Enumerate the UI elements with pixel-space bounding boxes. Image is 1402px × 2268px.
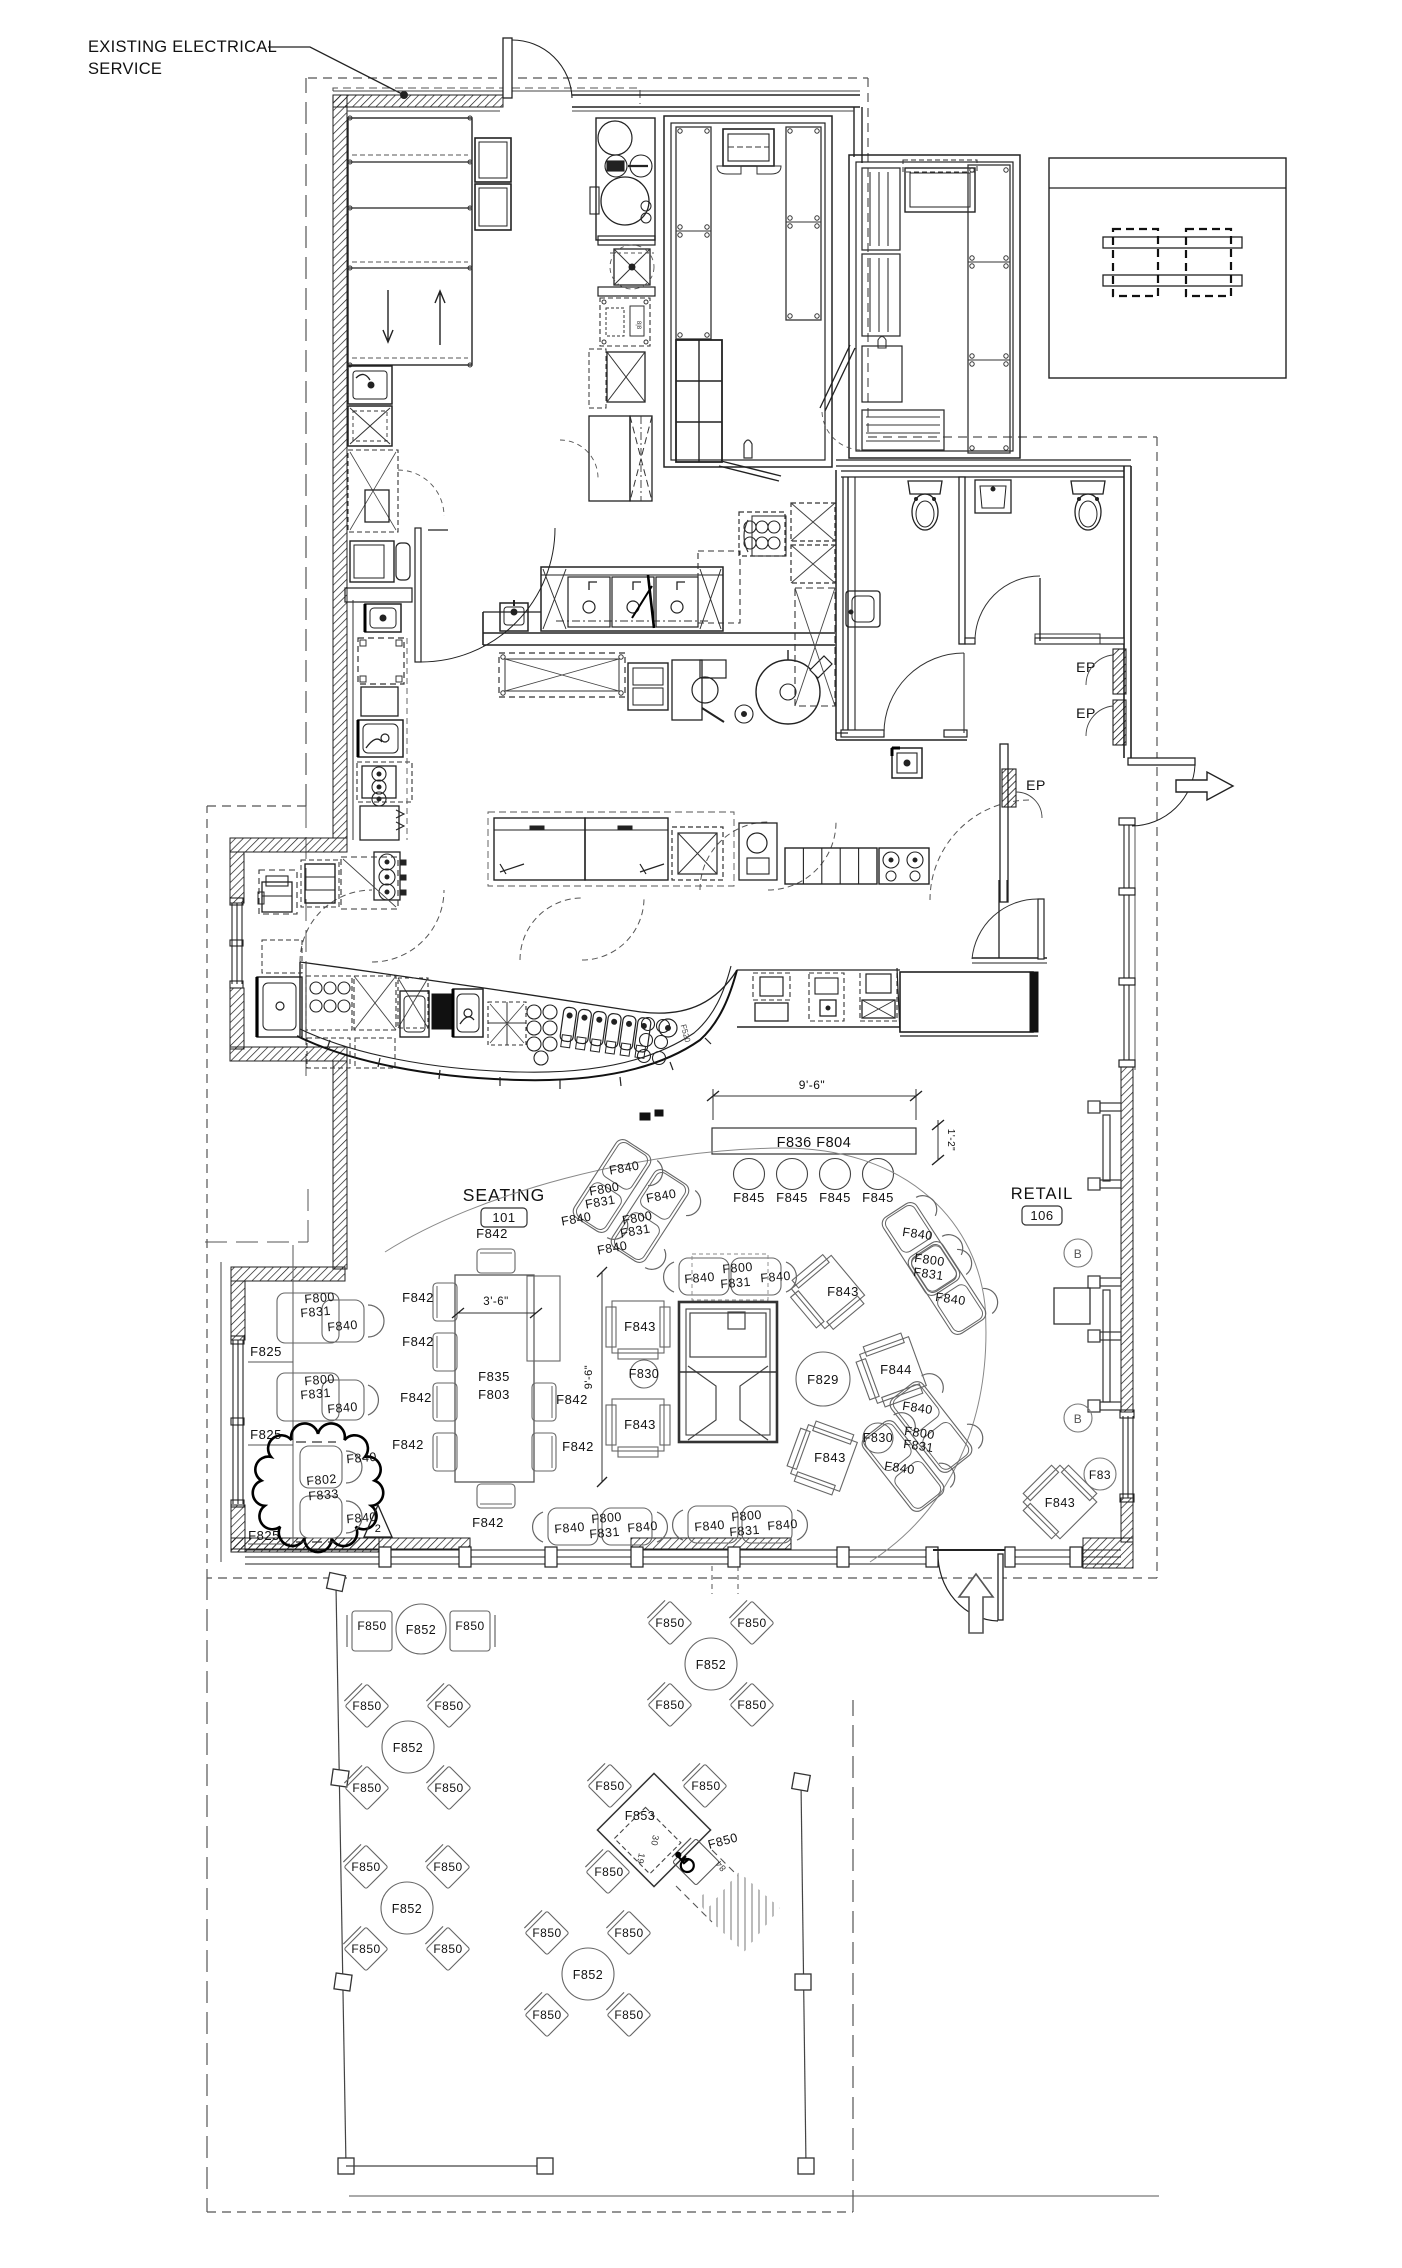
svg-text:F843: F843 bbox=[624, 1319, 656, 1334]
svg-text:F842: F842 bbox=[562, 1439, 594, 1454]
svg-text:F850: F850 bbox=[357, 1619, 386, 1633]
svg-text:F831: F831 bbox=[729, 1523, 761, 1540]
svg-text:F831: F831 bbox=[300, 1386, 332, 1403]
svg-text:F800: F800 bbox=[591, 1510, 623, 1527]
svg-text:F850: F850 bbox=[455, 1619, 484, 1633]
svg-text:F842: F842 bbox=[402, 1334, 434, 1349]
svg-text:101: 101 bbox=[492, 1210, 515, 1225]
svg-text:F840: F840 bbox=[327, 1400, 359, 1417]
svg-text:F852: F852 bbox=[573, 1968, 604, 1982]
svg-text:30: 30 bbox=[649, 1834, 661, 1847]
svg-text:F843: F843 bbox=[814, 1450, 846, 1465]
svg-text:F843: F843 bbox=[624, 1417, 656, 1432]
svg-text:F830: F830 bbox=[629, 1367, 660, 1381]
svg-text:F850: F850 bbox=[434, 1781, 463, 1795]
svg-text:EP: EP bbox=[1076, 705, 1096, 721]
svg-text:SERVICE: SERVICE bbox=[88, 60, 162, 78]
svg-text:F850: F850 bbox=[737, 1698, 766, 1712]
svg-text:F853: F853 bbox=[625, 1809, 656, 1823]
svg-text:F836 F804: F836 F804 bbox=[777, 1135, 852, 1151]
svg-text:RETAIL: RETAIL bbox=[1011, 1185, 1074, 1203]
svg-text:F840: F840 bbox=[694, 1518, 726, 1535]
svg-text:F833: F833 bbox=[308, 1487, 340, 1504]
svg-text:F850: F850 bbox=[532, 2008, 561, 2022]
svg-text:F842: F842 bbox=[400, 1390, 432, 1405]
svg-text:F850: F850 bbox=[655, 1698, 684, 1712]
svg-text:F850: F850 bbox=[594, 1865, 623, 1879]
svg-text:F831: F831 bbox=[720, 1275, 752, 1292]
svg-text:F840: F840 bbox=[684, 1270, 716, 1287]
svg-text:3'-6": 3'-6" bbox=[483, 1296, 508, 1308]
svg-text:2: 2 bbox=[375, 1523, 382, 1535]
svg-text:F830: F830 bbox=[863, 1431, 894, 1445]
svg-text:F850: F850 bbox=[433, 1942, 462, 1956]
svg-text:F842: F842 bbox=[392, 1437, 424, 1452]
svg-text:F840: F840 bbox=[767, 1517, 799, 1534]
svg-text:F850: F850 bbox=[532, 1926, 561, 1940]
svg-text:F852: F852 bbox=[696, 1658, 727, 1672]
svg-text:F842: F842 bbox=[472, 1515, 504, 1530]
svg-text:F825: F825 bbox=[250, 1344, 282, 1359]
svg-text:F83: F83 bbox=[1089, 1468, 1111, 1482]
svg-text:F825: F825 bbox=[250, 1427, 282, 1442]
svg-text:F845: F845 bbox=[819, 1190, 851, 1205]
svg-text:F840: F840 bbox=[627, 1519, 659, 1536]
svg-text:8|8: 8|8 bbox=[635, 321, 641, 330]
svg-text:1'-2": 1'-2" bbox=[945, 1129, 956, 1151]
svg-text:F840: F840 bbox=[554, 1520, 586, 1537]
svg-text:F842: F842 bbox=[402, 1290, 434, 1305]
svg-text:F850: F850 bbox=[737, 1616, 766, 1630]
svg-text:F850: F850 bbox=[691, 1779, 720, 1793]
svg-text:F850: F850 bbox=[614, 2008, 643, 2022]
svg-text:F803: F803 bbox=[478, 1387, 510, 1402]
svg-text:F850: F850 bbox=[614, 1926, 643, 1940]
svg-text:F850: F850 bbox=[351, 1942, 380, 1956]
svg-text:F800: F800 bbox=[722, 1260, 754, 1277]
svg-text:F840: F840 bbox=[327, 1318, 359, 1335]
svg-text:F802: F802 bbox=[306, 1472, 338, 1489]
svg-text:F852: F852 bbox=[392, 1902, 423, 1916]
svg-text:F843: F843 bbox=[1045, 1496, 1076, 1510]
svg-text:106: 106 bbox=[1030, 1208, 1053, 1223]
svg-text:F829: F829 bbox=[807, 1372, 839, 1387]
svg-text:F840: F840 bbox=[760, 1269, 792, 1286]
svg-text:B: B bbox=[1074, 1412, 1083, 1426]
svg-text:F845: F845 bbox=[776, 1190, 808, 1205]
svg-text:F845: F845 bbox=[862, 1190, 894, 1205]
svg-text:F852: F852 bbox=[393, 1741, 424, 1755]
svg-text:F842: F842 bbox=[556, 1392, 588, 1407]
svg-text:EP: EP bbox=[1026, 777, 1046, 793]
svg-text:F831: F831 bbox=[589, 1525, 621, 1542]
svg-text:F850: F850 bbox=[595, 1779, 624, 1793]
svg-text:EP: EP bbox=[1076, 659, 1096, 675]
svg-text:F850: F850 bbox=[655, 1616, 684, 1630]
svg-text:F842: F842 bbox=[476, 1226, 508, 1241]
svg-text:19: 19 bbox=[635, 1852, 647, 1865]
svg-text:EXISTING ELECTRICAL: EXISTING ELECTRICAL bbox=[88, 38, 277, 56]
svg-text:F852: F852 bbox=[406, 1623, 437, 1637]
svg-text:F843: F843 bbox=[827, 1284, 859, 1299]
svg-text:F850: F850 bbox=[352, 1699, 381, 1713]
svg-text:F850: F850 bbox=[433, 1860, 462, 1874]
svg-text:F850: F850 bbox=[351, 1860, 380, 1874]
svg-text:F800: F800 bbox=[731, 1508, 763, 1525]
svg-text:F840: F840 bbox=[346, 1450, 378, 1467]
svg-text:F850: F850 bbox=[434, 1699, 463, 1713]
svg-text:F844: F844 bbox=[880, 1362, 912, 1377]
svg-text:F845: F845 bbox=[733, 1190, 765, 1205]
svg-text:F835: F835 bbox=[478, 1369, 510, 1384]
svg-text:F831: F831 bbox=[300, 1304, 332, 1321]
svg-text:F850: F850 bbox=[352, 1781, 381, 1795]
svg-text:9'-6": 9'-6" bbox=[583, 1365, 595, 1389]
svg-text:B: B bbox=[1074, 1247, 1083, 1261]
svg-text:9'-6": 9'-6" bbox=[799, 1078, 825, 1092]
